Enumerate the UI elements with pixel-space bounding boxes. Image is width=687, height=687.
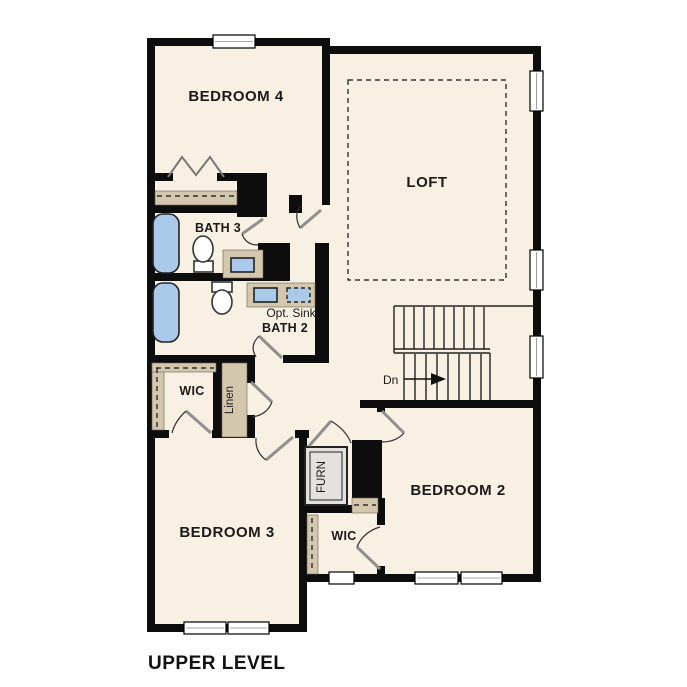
wic2-label: WIC	[331, 529, 356, 543]
bedroom3-label: BEDROOM 3	[179, 524, 274, 541]
bathtub-icon	[153, 283, 179, 342]
floor-plan-drawing: Dn	[0, 0, 687, 687]
optional-sink-icon	[287, 288, 310, 302]
toilet-icon	[212, 282, 232, 314]
window-icon	[530, 71, 543, 111]
window-icon	[213, 35, 255, 48]
bath2-label: BATH 2	[262, 321, 308, 335]
opt-sink-label: Opt. Sink	[266, 306, 316, 320]
window-icon	[530, 336, 543, 378]
toilet-icon	[193, 236, 213, 272]
loft-label: LOFT	[406, 174, 447, 191]
page-title: UPPER LEVEL	[148, 653, 285, 674]
vanity-double-sink-icon	[247, 283, 315, 307]
floor-plan-page: Dn	[0, 0, 687, 687]
linen-label: Linen	[224, 386, 236, 414]
furnace-label: FURN	[316, 461, 328, 493]
bath3-label: BATH 3	[195, 221, 241, 235]
bedroom4-closet-shelf	[155, 191, 237, 205]
bathtub-icon	[153, 214, 179, 273]
window-icon	[329, 572, 354, 584]
window-icon	[461, 572, 502, 584]
wic-label: WIC	[179, 384, 204, 398]
vanity-sink-icon	[223, 250, 263, 278]
window-icon	[530, 250, 543, 290]
bedroom2-label: BEDROOM 2	[410, 482, 505, 499]
window-icon	[415, 572, 458, 584]
bedroom4-label: BEDROOM 4	[188, 88, 284, 105]
wic-shelf	[152, 363, 164, 430]
window-icon	[228, 622, 269, 634]
window-icon	[184, 622, 226, 634]
stairs-direction-label: Dn	[383, 373, 398, 387]
